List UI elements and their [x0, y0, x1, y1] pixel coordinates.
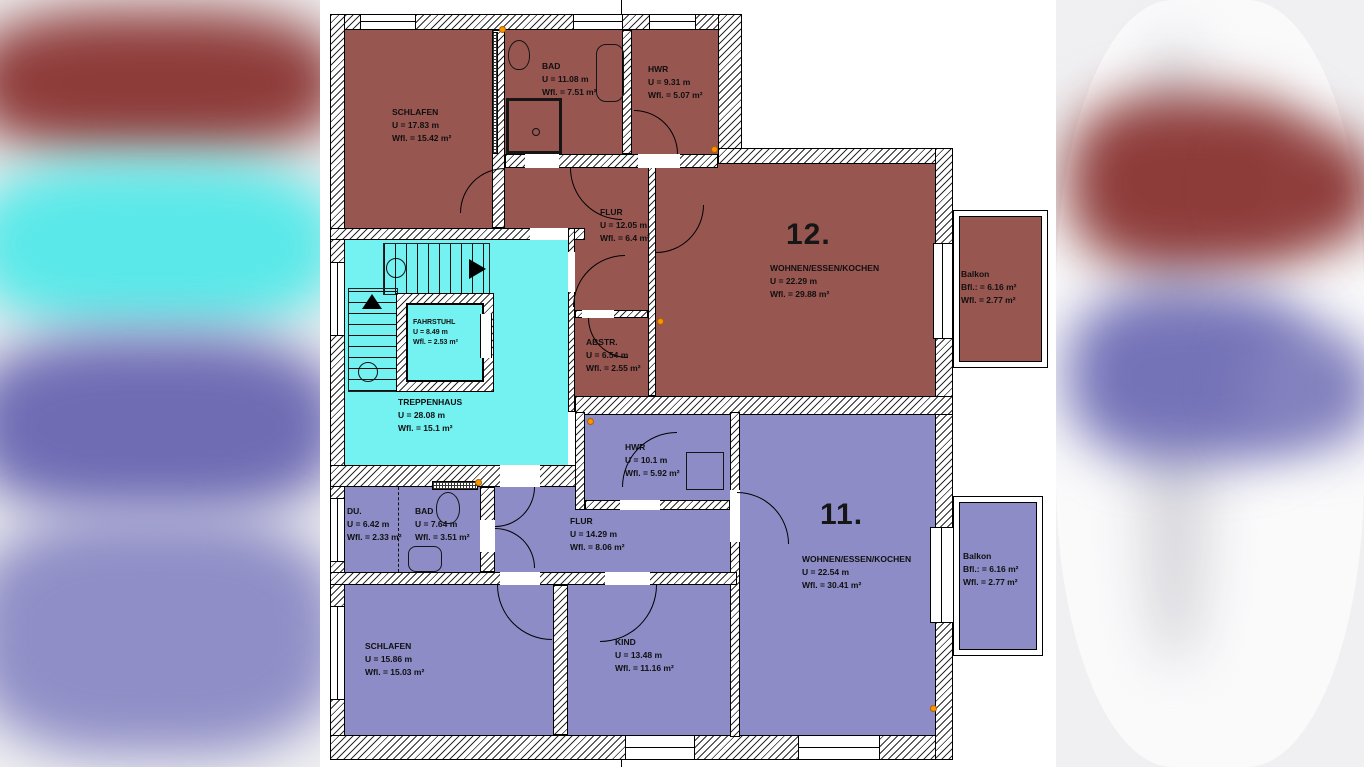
marker-dot	[657, 318, 664, 325]
room-area: Wfl. = 7.51 m²	[542, 86, 597, 99]
room-perimeter: U = 28.08 m	[398, 409, 462, 422]
marker-dot	[499, 26, 506, 33]
room-name: SCHLAFEN	[392, 106, 451, 119]
room-name: FAHRSTUHL	[413, 318, 458, 328]
wall-right-outer	[935, 148, 953, 760]
insulation-bad11	[432, 481, 478, 490]
room-floor-area: Bfl.: = 6.16 m²	[961, 281, 1017, 294]
room-name: Balkon	[961, 268, 1017, 281]
toilet-apt12	[508, 40, 530, 70]
stairs-direction-arrow	[469, 259, 486, 279]
floor-plan: SCHLAFEN U = 17.83 m Wfl. = 15.42 m² BAD…	[320, 0, 1056, 767]
room-name: DU.	[347, 505, 402, 518]
room-floor-area: Bfl.: = 6.16 m²	[963, 563, 1019, 576]
label-flur-apt11: FLUR U = 14.29 m Wfl. = 8.06 m²	[570, 515, 625, 553]
blur-red-blob-2	[1245, 135, 1364, 245]
room-area: Wfl. = 6.4 m²	[600, 232, 650, 245]
apartment-number-12: 12.	[786, 218, 831, 252]
door-opening	[525, 154, 559, 168]
stairs-start-circle	[386, 258, 406, 278]
label-bad-apt11: BAD U = 7.64 m Wfl. = 3.51 m²	[415, 505, 470, 543]
door-opening	[582, 310, 614, 318]
screenshot-root: { "document_type": "floor-plan", "colors…	[0, 0, 1364, 767]
shower-drain-apt12	[532, 128, 540, 136]
room-name: BAD	[542, 60, 597, 73]
door-opening	[605, 572, 650, 585]
room-area: Wfl. = 5.92 m²	[625, 467, 680, 480]
sink-apt11	[408, 546, 442, 572]
insulation-bad12	[492, 32, 498, 154]
room-perimeter: U = 10.1 m	[625, 454, 680, 467]
window	[360, 14, 416, 30]
room-area: Wfl. = 2.33 m²	[347, 531, 402, 544]
blur-purple-block	[0, 335, 340, 515]
window	[573, 14, 623, 30]
door-opening	[530, 228, 568, 240]
door-opening	[480, 520, 495, 552]
door-opening	[500, 572, 540, 585]
room-perimeter: U = 12.05 m	[600, 219, 650, 232]
label-schlafen-apt12: SCHLAFEN U = 17.83 m Wfl. = 15.42 m²	[392, 106, 451, 144]
room-name: FLUR	[600, 206, 650, 219]
window	[649, 14, 696, 30]
room-area: Wfl. = 8.06 m²	[570, 541, 625, 554]
room-area: Wfl. = 2.77 m²	[961, 294, 1017, 307]
shower-apt12	[506, 98, 562, 154]
room-area: Wfl. = 2.55 m²	[586, 362, 641, 375]
room-perimeter: U = 7.64 m	[415, 518, 470, 531]
reference-line-bottom	[621, 760, 622, 767]
door-opening	[500, 465, 540, 487]
marker-dot	[587, 418, 594, 425]
wall-right-upper	[718, 14, 742, 154]
window	[625, 735, 695, 760]
room-area: Wfl. = 5.07 m²	[648, 89, 703, 102]
window	[330, 498, 345, 562]
room-area: Wfl. = 2.77 m²	[963, 576, 1019, 589]
marker-dot	[930, 705, 937, 712]
room-name: KIND	[615, 636, 674, 649]
marker-dot	[475, 479, 482, 486]
stairs-up-arrow	[362, 294, 382, 309]
door-opening	[568, 252, 575, 292]
room-area: Wfl. = 11.16 m²	[615, 662, 674, 675]
label-flur-apt12: FLUR U = 12.05 m Wfl. = 6.4 m²	[600, 206, 650, 244]
room-area: Wfl. = 30.41 m²	[802, 579, 911, 592]
room-name: WOHNEN/ESSEN/KOCHEN	[802, 553, 911, 566]
room-perimeter: U = 14.29 m	[570, 528, 625, 541]
room-perimeter: U = 6.54 m	[586, 349, 641, 362]
label-schlafen-apt11: SCHLAFEN U = 15.86 m Wfl. = 15.03 m²	[365, 640, 424, 678]
label-wohnen-apt11: WOHNEN/ESSEN/KOCHEN U = 22.54 m Wfl. = 3…	[802, 553, 911, 591]
room-name: BAD	[415, 505, 470, 518]
blur-red-block	[0, 10, 340, 155]
room-perimeter: U = 15.86 m	[365, 653, 424, 666]
room-area: Wfl. = 29.88 m²	[770, 288, 879, 301]
room-name: Balkon	[963, 550, 1019, 563]
window	[330, 606, 345, 700]
wall-hwr11-left	[575, 412, 585, 510]
window	[330, 262, 345, 336]
room-area: Wfl. = 3.51 m²	[415, 531, 470, 544]
room-perimeter: U = 6.42 m	[347, 518, 402, 531]
label-kind-apt11: KIND U = 13.48 m Wfl. = 11.16 m²	[615, 636, 674, 674]
wall-flur-wohnen12	[648, 162, 656, 396]
marker-dot	[711, 146, 718, 153]
label-du-apt11: DU. U = 6.42 m Wfl. = 2.33 m²	[347, 505, 402, 543]
label-fahrstuhl: FAHRSTUHL U = 8.49 m Wfl. = 2.53 m²	[413, 318, 458, 348]
label-balkon-apt12: Balkon Bfl.: = 6.16 m² Wfl. = 2.77 m²	[961, 268, 1017, 306]
blur-purple-blob-2	[1245, 335, 1364, 445]
wall-apartment-divider	[575, 396, 953, 415]
label-hwr-apt11: HWR U = 10.1 m Wfl. = 5.92 m²	[625, 441, 680, 479]
label-wohnen-apt12: WOHNEN/ESSEN/KOCHEN U = 22.29 m Wfl. = 2…	[770, 262, 879, 300]
room-area: Wfl. = 2.53 m²	[413, 338, 458, 348]
room-name: SCHLAFEN	[365, 640, 424, 653]
label-bad-apt12: BAD U = 11.08 m Wfl. = 7.51 m²	[542, 60, 597, 98]
door-opening	[638, 154, 680, 168]
wall-step	[718, 148, 953, 164]
label-treppenhaus: TREPPENHAUS U = 28.08 m Wfl. = 15.1 m²	[398, 396, 462, 434]
room-name: ABSTR.	[586, 336, 641, 349]
window	[798, 735, 880, 760]
bathtub-apt12	[596, 44, 624, 102]
balcony-door-apt11	[930, 527, 954, 623]
room-name: HWR	[625, 441, 680, 454]
room-area: Wfl. = 15.03 m²	[365, 666, 424, 679]
stairs-end-circle	[358, 362, 378, 382]
room-perimeter: U = 8.49 m	[413, 328, 458, 338]
room-perimeter: U = 22.29 m	[770, 275, 879, 288]
label-hwr-apt12: HWR U = 9.31 m Wfl. = 5.07 m²	[648, 63, 703, 101]
room-name: WOHNEN/ESSEN/KOCHEN	[770, 262, 879, 275]
room-name: FLUR	[570, 515, 625, 528]
room-perimeter: U = 22.54 m	[802, 566, 911, 579]
room-perimeter: U = 17.83 m	[392, 119, 451, 132]
apartment-number-11: 11.	[820, 498, 863, 532]
reference-line-top	[621, 0, 622, 14]
room-perimeter: U = 9.31 m	[648, 76, 703, 89]
room-perimeter: U = 13.48 m	[615, 649, 674, 662]
wall-schlafen-kind11	[553, 585, 568, 735]
room-perimeter: U = 11.08 m	[542, 73, 597, 86]
room-area: Wfl. = 15.1 m²	[398, 422, 462, 435]
blur-lavender-block	[0, 515, 340, 755]
elevator-door-opening	[480, 314, 492, 358]
blur-cyan-block	[0, 160, 340, 330]
door-opening	[620, 500, 660, 510]
room-name: TREPPENHAUS	[398, 396, 462, 409]
washer-apt11	[686, 452, 724, 490]
room-area: Wfl. = 15.42 m²	[392, 132, 451, 145]
balcony-door-apt12	[933, 243, 953, 339]
room-name: HWR	[648, 63, 703, 76]
label-balkon-apt11: Balkon Bfl.: = 6.16 m² Wfl. = 2.77 m²	[963, 550, 1019, 588]
label-abstr-apt12: ABSTR. U = 6.54 m Wfl. = 2.55 m²	[586, 336, 641, 374]
